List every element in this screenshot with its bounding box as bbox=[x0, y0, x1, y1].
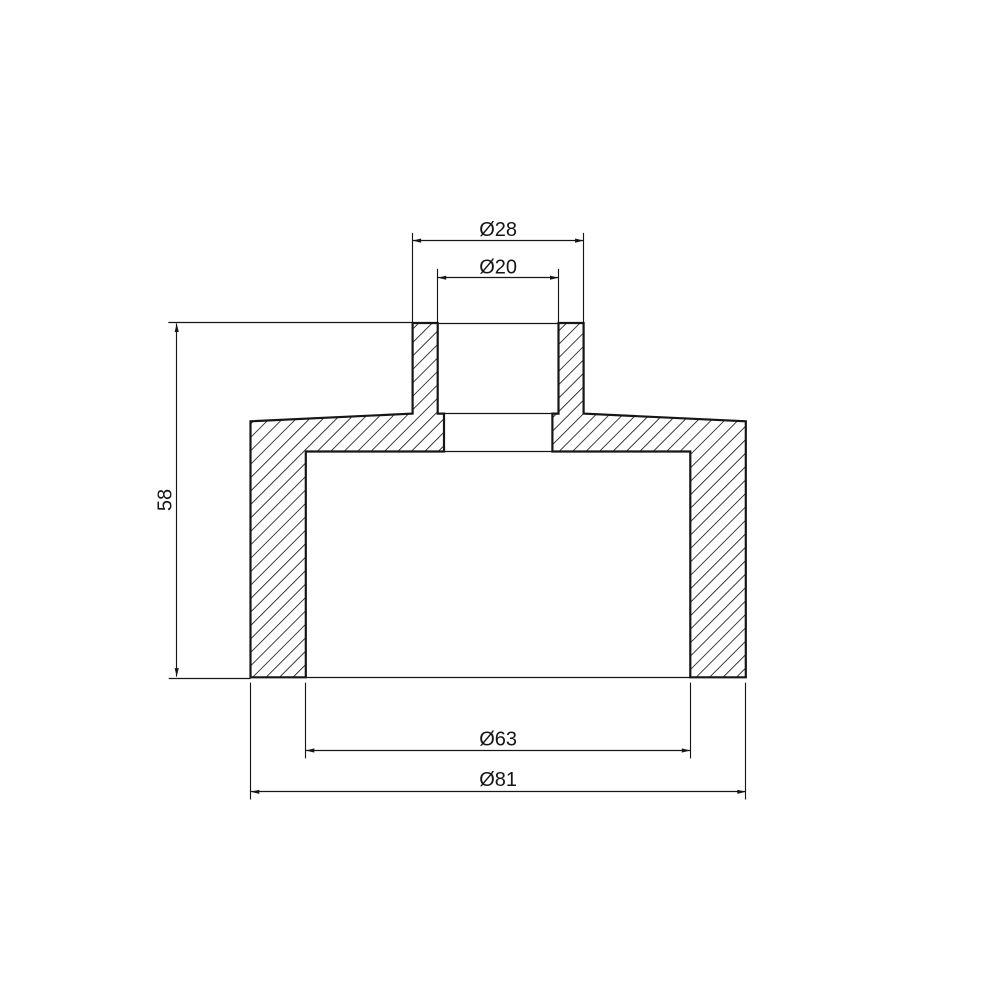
svg-text:Ø28: Ø28 bbox=[479, 219, 517, 241]
svg-text:Ø20: Ø20 bbox=[479, 256, 517, 278]
svg-text:Ø81: Ø81 bbox=[479, 769, 517, 791]
svg-text:58: 58 bbox=[155, 489, 177, 511]
svg-text:Ø63: Ø63 bbox=[479, 729, 517, 751]
